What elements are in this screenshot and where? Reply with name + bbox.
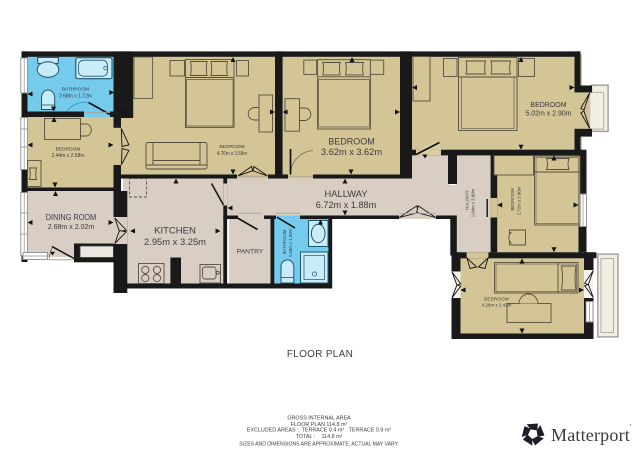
svg-text:6.72m x 1.88m: 6.72m x 1.88m <box>316 200 377 210</box>
svg-text:BEDROOM: BEDROOM <box>510 188 515 211</box>
svg-text:HALLWAY: HALLWAY <box>325 189 368 199</box>
svg-text:BEDROOM: BEDROOM <box>328 137 375 147</box>
svg-text:PANTRY: PANTRY <box>237 249 264 256</box>
svg-text:°: ° <box>630 424 632 430</box>
svg-text:HALLWAY: HALLWAY <box>465 190 470 210</box>
svg-text:FLOOR PLAN: FLOOR PLAN <box>287 349 353 360</box>
svg-text:1.04m x 3.00m: 1.04m x 3.00m <box>471 188 476 217</box>
svg-text:EXCLUDED AREAS : TERRACE 0.4: EXCLUDED AREAS : TERRACE 0.4 m² TERRACE … <box>247 428 392 434</box>
svg-text:5.02m x 2.90m: 5.02m x 2.90m <box>526 111 572 118</box>
svg-text:1.68m x 1.99m: 1.68m x 1.99m <box>288 228 293 257</box>
svg-text:2.68m x 2.02m: 2.68m x 2.02m <box>48 222 95 231</box>
svg-text:TOTAL : 114.8 m²: TOTAL : 114.8 m² <box>296 434 343 440</box>
svg-text:BEDROOM: BEDROOM <box>56 147 81 153</box>
svg-text:BEDROOM: BEDROOM <box>530 102 566 109</box>
svg-text:DINING ROOM: DINING ROOM <box>46 213 97 222</box>
svg-text:3.62m x 3.62m: 3.62m x 3.62m <box>321 147 382 157</box>
svg-text:KITCHEN: KITCHEN <box>154 226 196 237</box>
svg-text:SIZES AND DIMENSIONS ARE APPRO: SIZES AND DIMENSIONS ARE APPROXIMATE, AC… <box>239 442 398 448</box>
svg-text:BATHROOM: BATHROOM <box>62 87 89 93</box>
svg-text:4.26m x 2.42m: 4.26m x 2.42m <box>482 303 512 308</box>
svg-text:2.44m x 2.58m: 2.44m x 2.58m <box>51 153 84 159</box>
svg-text:GROSS INTERNAL AREA: GROSS INTERNAL AREA <box>287 416 351 422</box>
svg-text:2.72m x 3.00m: 2.72m x 3.00m <box>517 186 522 215</box>
svg-text:4.76m x 3.56m: 4.76m x 3.56m <box>217 151 247 157</box>
svg-text:BATHROOM: BATHROOM <box>282 229 287 254</box>
svg-text:BEDROOM: BEDROOM <box>219 144 244 150</box>
svg-text:2.68m x 1.72m: 2.68m x 1.72m <box>59 94 92 100</box>
svg-text:2.95m x 3.25m: 2.95m x 3.25m <box>144 237 206 248</box>
svg-text:Matterport: Matterport <box>551 425 630 445</box>
svg-text:BEDROOM: BEDROOM <box>484 297 509 302</box>
